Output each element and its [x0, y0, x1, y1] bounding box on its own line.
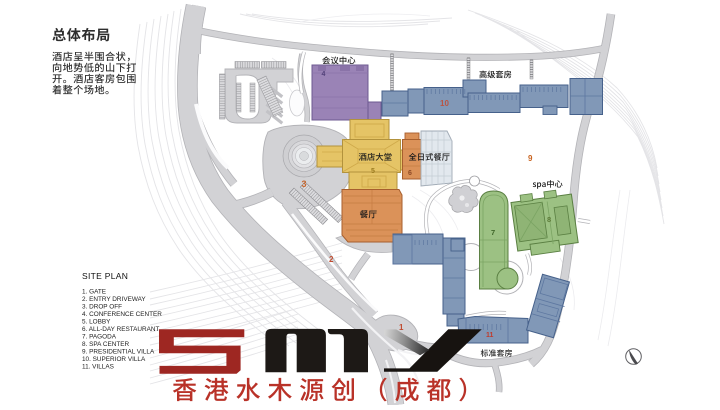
svg-text:8. SPA CENTER: 8. SPA CENTER: [82, 341, 129, 348]
svg-text:1. GATE: 1. GATE: [82, 288, 106, 295]
svg-text:5. LOBBY: 5. LOBBY: [82, 318, 111, 325]
svg-text:7. PAGODA: 7. PAGODA: [82, 333, 117, 340]
svg-text:10: 10: [440, 99, 449, 108]
svg-text:11: 11: [486, 332, 494, 339]
svg-text:10. SUPERIOR VILLA: 10. SUPERIOR VILLA: [82, 356, 146, 363]
svg-text:11. VILLAS: 11. VILLAS: [82, 363, 114, 370]
svg-text:9: 9: [528, 154, 533, 163]
svg-text:9. PRESIDENTIAL VILLA: 9. PRESIDENTIAL VILLA: [82, 348, 155, 355]
svg-text:3. DROP OFF: 3. DROP OFF: [82, 303, 122, 310]
svg-text:6: 6: [408, 170, 412, 177]
svg-text:4. CONFERENCE CENTER: 4. CONFERENCE CENTER: [82, 311, 162, 318]
svg-text:7: 7: [491, 228, 495, 237]
svg-text:4: 4: [322, 71, 326, 78]
svg-text:2: 2: [329, 255, 334, 264]
svg-text:6. ALL-DAY RESTAURANT: 6. ALL-DAY RESTAURANT: [82, 326, 160, 333]
svg-text:SITE PLAN: SITE PLAN: [82, 271, 128, 281]
svg-text:5: 5: [371, 168, 375, 175]
svg-text:2. ENTRY DRIVEWAY: 2. ENTRY DRIVEWAY: [82, 296, 146, 303]
svg-text:3: 3: [302, 179, 307, 189]
svg-text:8: 8: [547, 215, 551, 224]
svg-text:1: 1: [399, 323, 404, 332]
